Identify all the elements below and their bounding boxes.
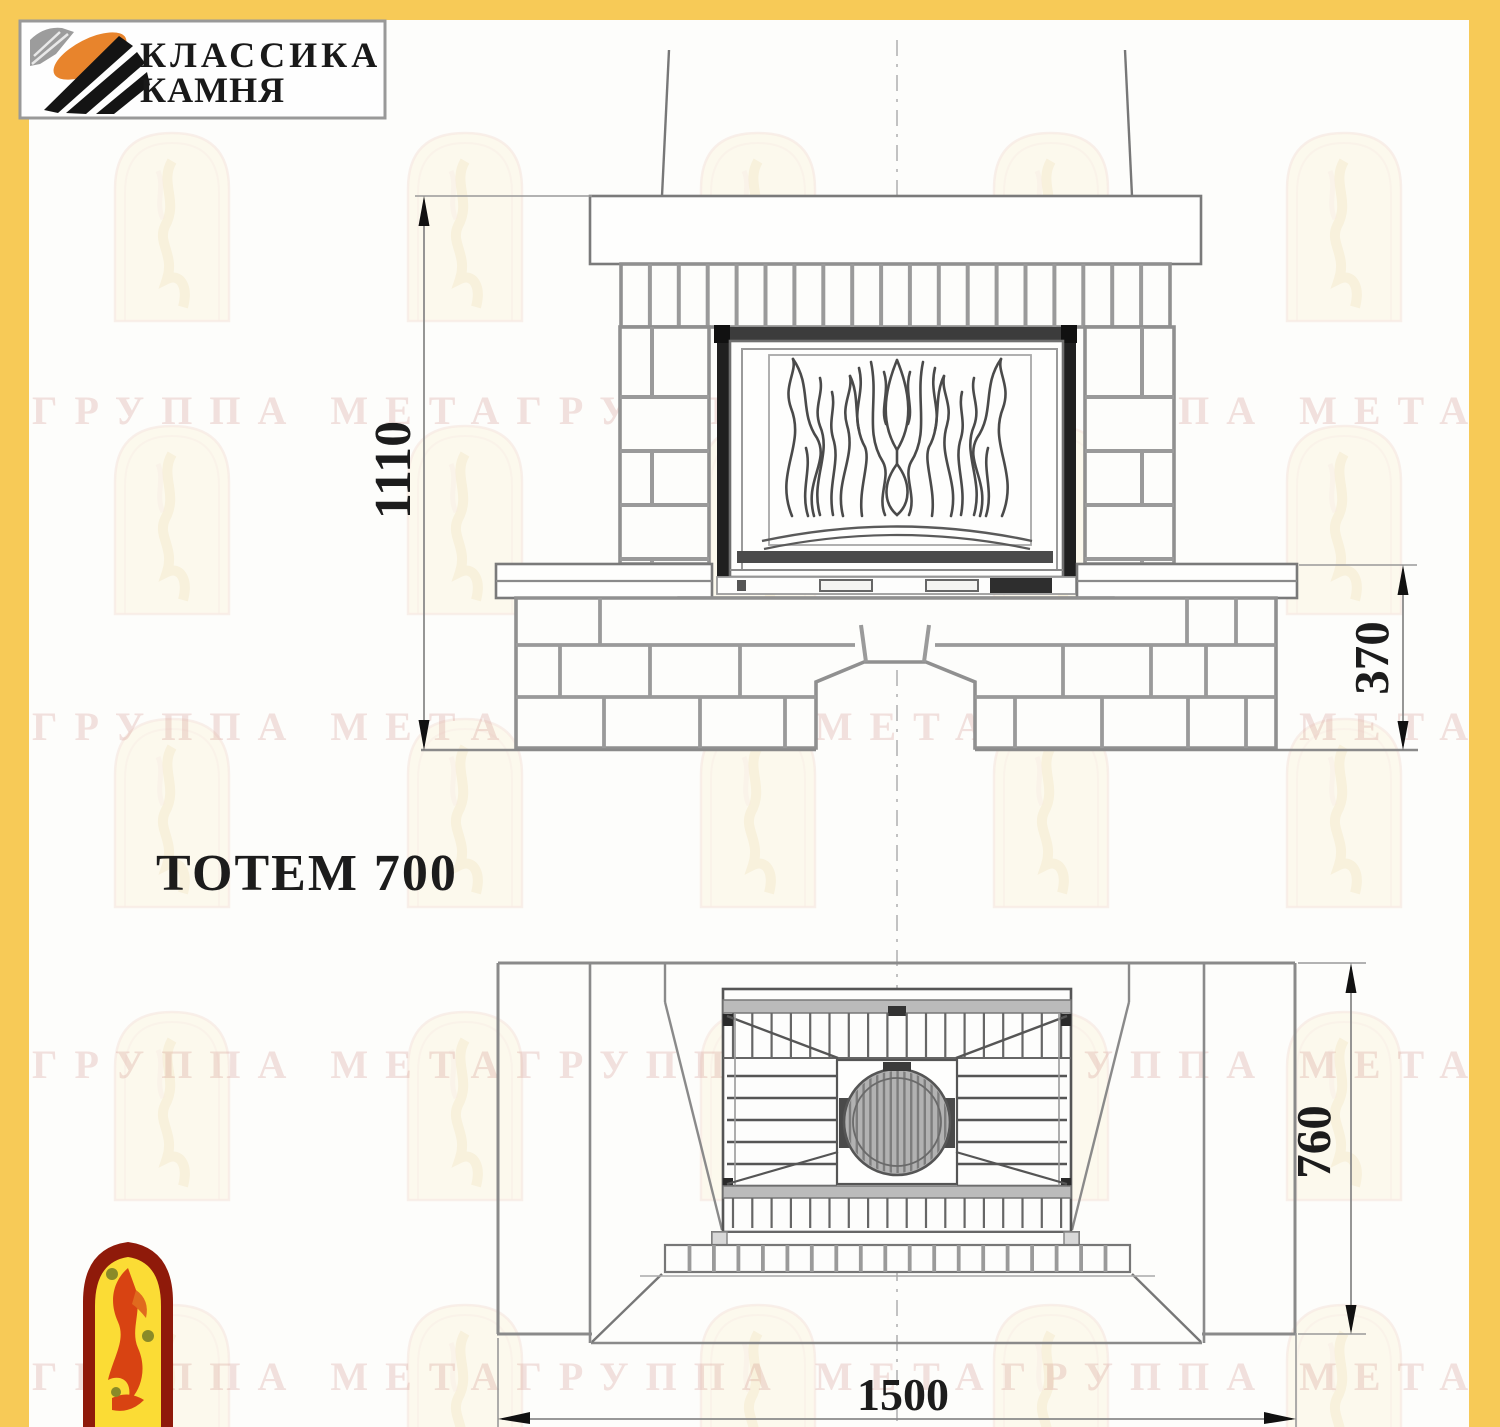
- svg-text:1500: 1500: [857, 1369, 949, 1420]
- svg-text:760: 760: [1286, 1105, 1341, 1179]
- svg-text:КАМНЯ: КАМНЯ: [140, 70, 285, 110]
- svg-text:1110: 1110: [365, 421, 422, 519]
- svg-text:ГРУППА МЕТАГРУППА МЕТАГРУППА М: ГРУППА МЕТАГРУППА МЕТАГРУППА МЕТА: [32, 1354, 1485, 1399]
- svg-text:370: 370: [1344, 621, 1399, 695]
- svg-text:ТОТЕМ 700: ТОТЕМ 700: [156, 845, 458, 902]
- svg-text:КЛАССИКА: КЛАССИКА: [140, 35, 381, 75]
